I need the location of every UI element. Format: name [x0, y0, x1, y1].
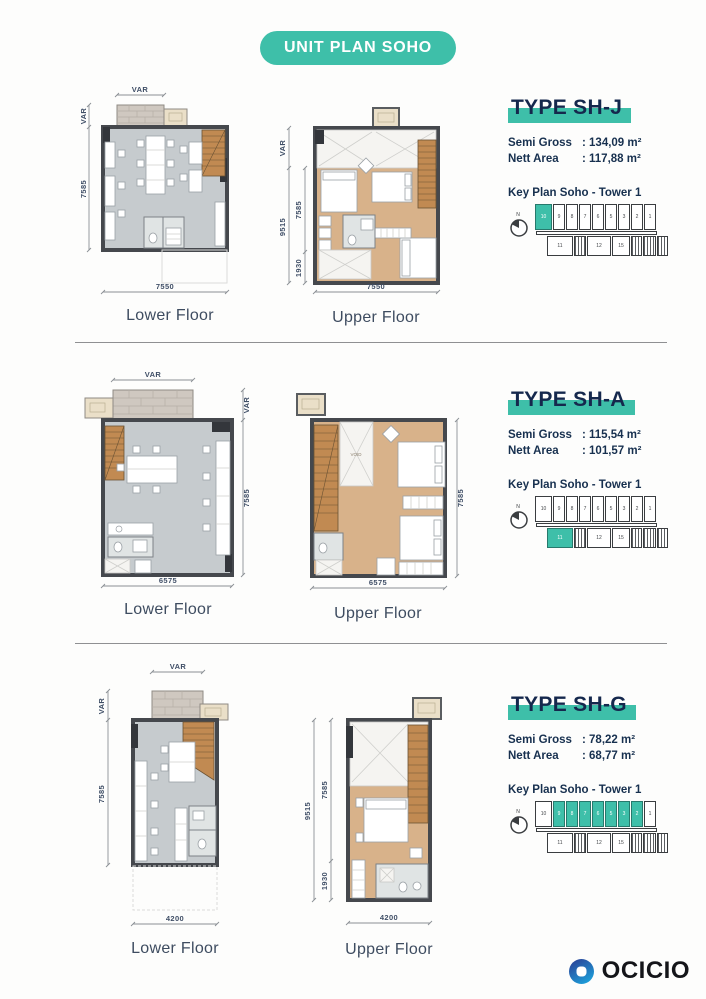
keyplan-unit-15: 15 [612, 236, 630, 256]
keyplan-building: 1098765321111215 [535, 496, 668, 548]
spec-row: Semi Gross: 134,09 m² [508, 137, 678, 149]
keyplan-unit-12: 12 [587, 833, 611, 853]
spec-label: Semi Gross [508, 429, 582, 441]
keyplan-unit-10: 10 [535, 204, 552, 230]
spec-label: Nett Area [508, 153, 582, 165]
keyplan-title: Key Plan Soho - Tower 1 [508, 187, 678, 199]
ghost-extension [133, 866, 217, 910]
room-label: VOID [350, 452, 362, 457]
spec-label: Nett Area [508, 750, 582, 762]
roof-box [373, 108, 399, 128]
brand-footer: OCICIO [568, 957, 690, 985]
keyplan-unit-11: 11 [547, 833, 573, 853]
svg-text:VAR: VAR [170, 662, 187, 671]
section-divider [75, 643, 667, 644]
keyplan-unit-3: 3 [618, 204, 630, 230]
keyplan-core [643, 528, 656, 548]
keyplan: N 1098765321111215 [508, 204, 678, 256]
keyplan-unit-2: 2 [631, 204, 643, 230]
svg-text:7585: 7585 [456, 489, 465, 507]
floor-label: Lower Floor [126, 307, 214, 324]
bathroom [105, 537, 153, 573]
keyplan-unit-10: 10 [535, 801, 552, 827]
keyplan-unit-9: 9 [553, 496, 565, 522]
keyplan-unit-1: 1 [644, 801, 656, 827]
brochure-page: UNIT PLAN SOHO [0, 0, 706, 999]
keyplan-unit-8: 8 [566, 496, 578, 522]
info-panel-shj: TYPE SH-J Semi Gross: 134,09 m² Nett Are… [508, 96, 678, 256]
spec-value: : 134,09 m² [582, 137, 641, 149]
keyplan-unit-7: 7 [579, 496, 591, 522]
svg-text:VAR: VAR [145, 370, 162, 379]
keyplan-unit-6: 6 [592, 204, 604, 230]
brand-name: OCICIO [602, 957, 690, 985]
keyplan-unit-6: 6 [592, 496, 604, 522]
svg-text:7585: 7585 [97, 785, 106, 803]
keyplan-unit-8: 8 [566, 204, 578, 230]
floor-label: Lower Floor [124, 601, 212, 618]
floor-label: Upper Floor [345, 941, 433, 958]
floorplan-sha-upper: VOID 7585 [285, 378, 485, 623]
keyplan-core [643, 236, 656, 256]
keyplan-unit-3: 3 [618, 801, 630, 827]
type-title: TYPE SH-G [508, 693, 636, 720]
keyplan-building: 1098765321111215 [535, 801, 668, 853]
keyplan-core [631, 833, 642, 853]
compass-icon: N [508, 210, 530, 240]
spec-row: Nett Area: 117,88 m² [508, 153, 678, 165]
ghost-extension [162, 250, 227, 283]
svg-text:VAR: VAR [132, 85, 149, 94]
svg-text:7550: 7550 [367, 282, 385, 291]
terrace [117, 105, 187, 127]
floorplan-shg-lower: VAR VAR 7585 4200 Lower Floor [85, 658, 265, 958]
svg-text:VAR: VAR [79, 108, 88, 125]
keyplan-title: Key Plan Soho - Tower 1 [508, 784, 678, 796]
brand-logo-icon [568, 958, 595, 985]
keyplan-unit-1: 1 [644, 496, 656, 522]
keyplan-unit-12: 12 [587, 528, 611, 548]
keyplan-unit-15: 15 [612, 528, 630, 548]
type-title: TYPE SH-J [508, 96, 631, 123]
svg-text:VAR: VAR [278, 140, 287, 157]
svg-text:4200: 4200 [380, 913, 398, 922]
spec-row: Semi Gross: 115,54 m² [508, 429, 678, 441]
svg-text:1930: 1930 [294, 259, 303, 277]
page-title: UNIT PLAN SOHO [260, 31, 456, 65]
info-panel-sha: TYPE SH-A Semi Gross: 115,54 m² Nett Are… [508, 388, 678, 548]
svg-text:VAR: VAR [97, 698, 106, 715]
svg-text:VAR: VAR [242, 397, 251, 414]
keyplan: N 1098765321111215 [508, 496, 678, 548]
keyplan-unit-3: 3 [618, 496, 630, 522]
spec-value: : 78,22 m² [582, 734, 635, 746]
keyplan-core [631, 236, 642, 256]
spec-value: : 115,54 m² [582, 429, 641, 441]
spec-value: : 101,57 m² [582, 445, 641, 457]
floorplan-shg-upper: 9515 7585 1930 4200 Upper Floor [300, 678, 480, 963]
keyplan-core [657, 236, 668, 256]
floor-label: Lower Floor [131, 940, 219, 957]
keyplan-core [574, 236, 586, 256]
spec-value: : 68,77 m² [582, 750, 635, 762]
spec-list: Semi Gross: 115,54 m² Nett Area: 101,57 … [508, 429, 678, 457]
keyplan-core [574, 528, 586, 548]
spec-list: Semi Gross: 78,22 m² Nett Area: 68,77 m² [508, 734, 678, 762]
floorplan-sha-lower: VAR VAR 7585 6575 Lower Floor [75, 368, 275, 618]
keyplan-unit-10: 10 [535, 496, 552, 522]
keyplan-unit-5: 5 [605, 496, 617, 522]
svg-text:6575: 6575 [369, 578, 387, 587]
keyplan-core [574, 833, 586, 853]
keyplan-unit-12: 12 [587, 236, 611, 256]
keyplan-unit-11: 11 [547, 528, 573, 548]
svg-text:4200: 4200 [166, 914, 184, 923]
stairs [202, 130, 225, 176]
keyplan-corridor [536, 828, 657, 832]
compass-icon: N [508, 502, 530, 532]
spec-label: Semi Gross [508, 734, 582, 746]
svg-text:N: N [516, 212, 520, 218]
stairs [314, 425, 338, 531]
keyplan-unit-9: 9 [553, 204, 565, 230]
svg-text:N: N [516, 809, 520, 815]
keyplan-unit-15: 15 [612, 833, 630, 853]
floorplan-shj-upper: VAR 9515 7585 1930 7550 Upper Floor [255, 80, 465, 330]
type-title: TYPE SH-A [508, 388, 635, 415]
roof-box [413, 698, 441, 719]
svg-text:7550: 7550 [156, 282, 174, 291]
info-panel-shg: TYPE SH-G Semi Gross: 78,22 m² Nett Area… [508, 693, 678, 853]
svg-text:7585: 7585 [242, 489, 251, 507]
floor-label: Upper Floor [334, 605, 422, 622]
keyplan-unit-8: 8 [566, 801, 578, 827]
void-balcony [319, 250, 371, 279]
keyplan-building: 1098765321111215 [535, 204, 668, 256]
svg-text:6575: 6575 [159, 576, 177, 585]
keyplan-unit-2: 2 [631, 496, 643, 522]
svg-text:9515: 9515 [278, 218, 287, 236]
stairs [418, 140, 436, 208]
terrace [85, 390, 193, 420]
keyplan-unit-7: 7 [579, 204, 591, 230]
keyplan-core [631, 528, 642, 548]
svg-text:7585: 7585 [320, 781, 329, 799]
roof-box [297, 394, 325, 415]
bathroom [189, 806, 216, 856]
svg-text:7585: 7585 [294, 201, 303, 219]
keyplan-corridor [536, 523, 657, 527]
keyplan-unit-9: 9 [553, 801, 565, 827]
stairs [408, 725, 428, 823]
keyplan-unit-11: 11 [547, 236, 573, 256]
keyplan-core [657, 833, 668, 853]
void-room: VOID [340, 422, 373, 486]
keyplan-core [657, 528, 668, 548]
keyplan-title: Key Plan Soho - Tower 1 [508, 479, 678, 491]
compass-icon: N [508, 807, 530, 837]
keyplan-corridor [536, 231, 657, 235]
svg-text:N: N [516, 504, 520, 510]
spec-value: : 117,88 m² [582, 153, 641, 165]
svg-text:9515: 9515 [303, 802, 312, 820]
keyplan: N 1098765321111215 [508, 801, 678, 853]
floor-label: Upper Floor [332, 309, 420, 326]
floorplan-shj-lower: VAR VAR 7585 7550 Lower Floor [60, 80, 260, 325]
stairs [105, 426, 124, 480]
keyplan-unit-6: 6 [592, 801, 604, 827]
terrace [152, 691, 228, 720]
keyplan-core [643, 833, 656, 853]
svg-text:7585: 7585 [79, 180, 88, 198]
keyplan-unit-1: 1 [644, 204, 656, 230]
spec-label: Semi Gross [508, 137, 582, 149]
keyplan-unit-7: 7 [579, 801, 591, 827]
keyplan-unit-5: 5 [605, 204, 617, 230]
keyplan-unit-2: 2 [631, 801, 643, 827]
spec-row: Nett Area: 68,77 m² [508, 750, 678, 762]
spec-label: Nett Area [508, 445, 582, 457]
keyplan-unit-5: 5 [605, 801, 617, 827]
spec-row: Semi Gross: 78,22 m² [508, 734, 678, 746]
bathroom [144, 217, 184, 248]
bathroom [343, 215, 375, 248]
svg-text:1930: 1930 [320, 872, 329, 890]
section-divider [75, 342, 667, 343]
spec-list: Semi Gross: 134,09 m² Nett Area: 117,88 … [508, 137, 678, 165]
spec-row: Nett Area: 101,57 m² [508, 445, 678, 457]
